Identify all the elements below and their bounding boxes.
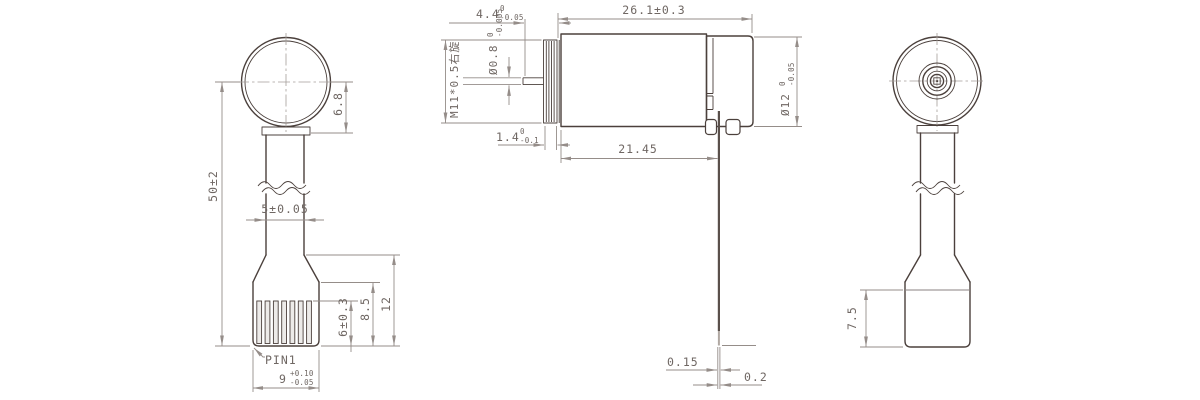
dim-label-overall-height: 50±2 [206, 170, 220, 202]
pin-rib-1 [257, 301, 262, 344]
motor-body [561, 34, 707, 127]
pin-rib-3 [273, 301, 278, 344]
fpc-pin-tip [718, 331, 720, 346]
dim-label-base-width-lower: -0.05 [290, 378, 314, 387]
end-cap [707, 36, 754, 127]
dim-label-shaft-dia-upper: 0 [486, 32, 495, 37]
dim-body-length: 26.1±0.3 [558, 3, 752, 38]
base-outline [905, 282, 970, 347]
leader-line [254, 348, 265, 357]
dim-label-pin-thickness-b: 0.2 [744, 370, 768, 384]
dim-label-body-dia: Ø12 [779, 93, 792, 116]
dim-label-pin-offset: 21.45 [618, 142, 658, 156]
dim-pin-thickness: 0.15 0.2 [666, 346, 768, 390]
dim-label-base-height: 8.5 [358, 297, 372, 321]
rear-view: 7.5 [845, 33, 985, 347]
front-view: 50±2 6.8 5±0.05 12 8.5 [206, 33, 400, 392]
dim-label-base-width-upper: +0.10 [290, 369, 314, 378]
terminal-tab-right [726, 120, 740, 135]
dim-base-height: 8.5 [321, 283, 380, 347]
dim-label-body-length: 26.1±0.3 [622, 3, 685, 17]
dim-label-pin-thickness-a: 0.15 [667, 355, 699, 369]
break-line-upper [258, 182, 306, 189]
side-view: 4.4 0 -0.05 26.1±0.3 Ø0.8 0 -0.005 [441, 3, 802, 389]
dim-thread-length: 1.4 0 -0.1 [496, 126, 570, 150]
pin-rib-2 [265, 301, 270, 344]
dim-label-head-offset: 6.8 [331, 92, 345, 116]
drawing-svg: 50±2 6.8 5±0.05 12 8.5 [0, 0, 1200, 400]
dim-head-offset: 6.8 [311, 82, 353, 133]
flare-left [253, 255, 266, 282]
dim-label-shaft-dia: Ø0.8 [487, 45, 500, 76]
pin-rib-4 [282, 301, 287, 344]
shaft-outline [523, 78, 544, 85]
dim-pin-exposed: 6±0.3 [313, 297, 358, 352]
neck-outline [917, 126, 958, 134]
fpc-pin [718, 111, 720, 331]
dim-body-dia: Ø12 0 -0.05 [754, 37, 802, 127]
dim-mount-height: 12 [306, 255, 400, 346]
dim-label-pin-exposed: 6±0.3 [336, 297, 350, 337]
flare-left [905, 255, 921, 282]
pin1-callout: PIN1 [254, 348, 297, 367]
dim-label-thread-length-upper: 0 [520, 127, 525, 136]
dim-stem-width: 5±0.05 [246, 202, 324, 220]
dim-label-thread-spec: M11*0.5右旋 [447, 41, 461, 118]
dim-label-thread-length-lower: -0.1 [520, 136, 539, 145]
shaft-end-dot [936, 80, 938, 82]
terminal-tab-left [706, 120, 717, 135]
dim-label-stem-width: 5±0.05 [261, 202, 309, 216]
flare-right [955, 255, 971, 282]
cap-slot-detail [707, 38, 714, 110]
pin-rib-5 [290, 301, 295, 344]
dim-pin-offset: 21.45 [561, 130, 718, 163]
engineering-drawing: 50±2 6.8 5±0.05 12 8.5 [0, 0, 1200, 400]
dim-base-block-height: 7.5 [845, 290, 903, 347]
break-line-lower [916, 188, 964, 195]
dim-label-body-dia-upper: 0 [778, 81, 787, 86]
break-line-lower [262, 188, 310, 195]
dim-label-mount-height: 12 [379, 296, 393, 312]
dim-label-thread-length: 1.4 [496, 130, 520, 144]
dim-label-shaft-dia-lower: -0.005 [495, 9, 504, 37]
pin1-label: PIN1 [265, 353, 297, 367]
break-line-upper [912, 182, 960, 189]
dim-overall-height: 50±2 [206, 82, 250, 346]
pin-rib-7 [307, 301, 312, 344]
pin-rib-6 [298, 301, 303, 344]
dim-label-base-width: 9 [279, 372, 287, 386]
dim-label-body-dia-lower: -0.05 [787, 62, 796, 86]
flare-right [304, 255, 319, 282]
thread-block [544, 40, 558, 123]
dim-label-base-block-height: 7.5 [845, 306, 859, 330]
